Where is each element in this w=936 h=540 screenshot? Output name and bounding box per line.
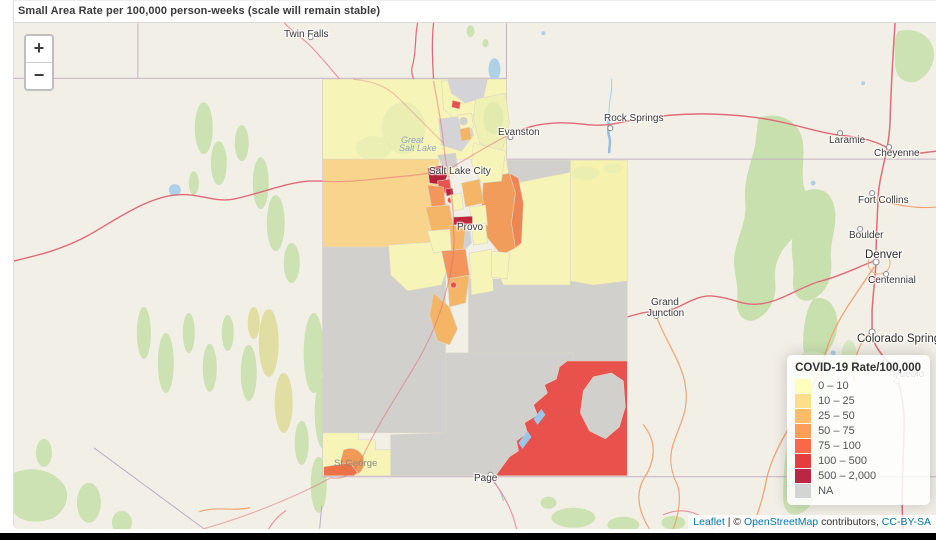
legend-swatch [795,454,811,468]
legend-row: 25 – 50 [795,408,921,423]
legend-panel: COVID-19 Rate/100,000 0 – 10 10 – 25 25 … [787,355,930,505]
legend-label: 75 – 100 [818,440,861,452]
legend-row: 75 – 100 [795,438,921,453]
zoom-control: + − [24,34,54,91]
license-link[interactable]: CC-BY-SA [882,516,931,528]
zoom-in-button[interactable]: + [26,36,52,63]
attribution-text: | © [725,516,744,528]
map-card: Small Area Rate per 100,000 person-weeks… [13,0,936,529]
legend-label: 100 – 500 [818,455,867,467]
attribution: Leaflet | © OpenStreetMap contributors, … [688,515,936,529]
legend-swatch [795,424,811,438]
legend-label: 10 – 25 [818,395,855,407]
page: Small Area Rate per 100,000 person-weeks… [0,0,936,540]
panel-title: Small Area Rate per 100,000 person-weeks… [14,1,936,23]
legend-title: COVID-19 Rate/100,000 [795,362,921,374]
legend-row: 0 – 10 [795,378,921,393]
osm-link[interactable]: OpenStreetMap [744,516,818,528]
attribution-text: contributors, [818,516,882,528]
legend-swatch [795,394,811,408]
legend-swatch [795,409,811,423]
legend-swatch [795,439,811,453]
legend-swatch [795,484,811,498]
leaflet-link[interactable]: Leaflet [693,516,725,528]
legend-label: 0 – 10 [818,380,849,392]
legend-row: 100 – 500 [795,453,921,468]
legend-row: 10 – 25 [795,393,921,408]
legend-label: NA [818,485,833,497]
legend-label: 50 – 75 [818,425,855,437]
map-canvas[interactable]: Twin FallsEvanstonRock SpringsLaramieChe… [14,23,936,529]
legend-label: 500 – 2,000 [818,470,876,482]
legend-swatch [795,379,811,393]
legend-row: 50 – 75 [795,423,921,438]
zoom-out-button[interactable]: − [26,63,52,89]
bottom-bar [0,533,936,540]
legend-row: 500 – 2,000 [795,468,921,483]
legend-swatch [795,469,811,483]
legend-row: NA [795,483,921,498]
legend-label: 25 – 50 [818,410,855,422]
